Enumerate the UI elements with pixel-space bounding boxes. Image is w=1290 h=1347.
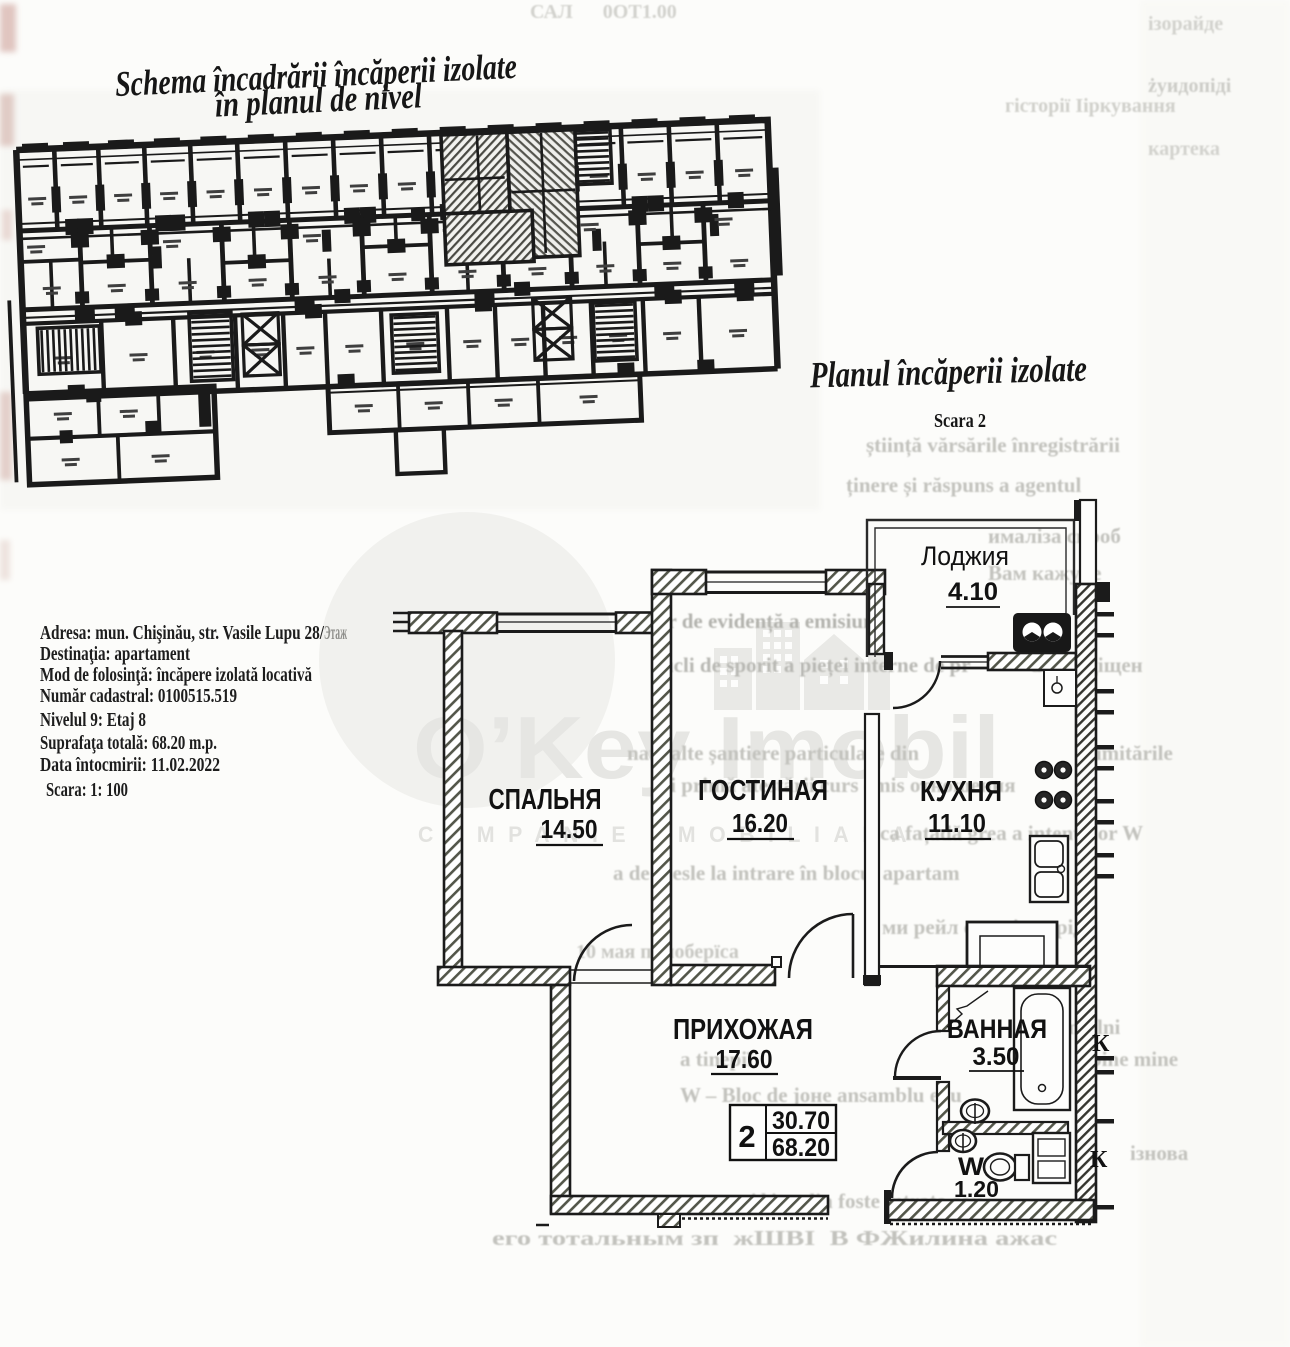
svg-text:11.10: 11.10 bbox=[928, 808, 986, 838]
svg-text:știință vărsările înregistrări: știință vărsările înregistrării bbox=[866, 433, 1120, 458]
svg-text:Data întocmirii: 11.02.2022: Data întocmirii: 11.02.2022 bbox=[40, 755, 220, 776]
svg-text:Adresa: mun. Chişinău, str. Va: Adresa: mun. Chişinău, str. Vasile Lupu … bbox=[40, 623, 324, 644]
svg-text:К: К bbox=[1092, 1031, 1110, 1057]
svg-text:ізорайде: ізорайде bbox=[1148, 13, 1223, 35]
svg-text:14.50: 14.50 bbox=[541, 814, 598, 844]
svg-text:ПРИХОЖАЯ: ПРИХОЖАЯ bbox=[673, 1014, 813, 1046]
svg-text:СПАЛЬНЯ: СПАЛЬНЯ bbox=[489, 784, 602, 816]
svg-text:limitările: limitările bbox=[1090, 741, 1173, 765]
svg-text:Destinaţia: apartament: Destinaţia: apartament bbox=[40, 644, 190, 665]
svg-text:его тотальным зп жШВІ В ФЖил: его тотальным зп жШВІ В ФЖилина ажас bbox=[492, 1226, 1057, 1250]
svg-text:Лоджия: Лоджия bbox=[921, 541, 1009, 571]
svg-text:or de evidență a emisiun: or de evidență a emisiun bbox=[657, 609, 875, 634]
svg-text:2: 2 bbox=[738, 1119, 755, 1154]
svg-text:Număr cadastral: 0100515.519: Număr cadastral: 0100515.519 bbox=[40, 686, 237, 707]
svg-text:4.10: 4.10 bbox=[948, 578, 998, 606]
svg-text:Nivelul 9: Etaj 8: Nivelul 9: Etaj 8 bbox=[40, 710, 146, 731]
svg-text:ізнова: ізнова bbox=[1130, 1141, 1189, 1165]
svg-text:гісторії Ііркування: гісторії Ііркування bbox=[1005, 95, 1176, 117]
svg-text:ucli de sporit a pieței intern: ucli de sporit a pieței interne de pr bbox=[662, 653, 971, 678]
svg-text:ținere și răspuns a agentul: ținere și răspuns a agentul bbox=[846, 473, 1081, 498]
svg-text:САЛ 0ОТ1.00: САЛ 0ОТ1.00 bbox=[530, 1, 677, 23]
svg-text:1.20: 1.20 bbox=[954, 1176, 999, 1202]
svg-text:ГОСТИНАЯ: ГОСТИНАЯ bbox=[698, 775, 828, 807]
svg-text:Planul încăperii izolate: Planul încăperii izolate bbox=[809, 349, 1088, 397]
svg-text:30.70: 30.70 bbox=[772, 1107, 830, 1135]
svg-text:17.60: 17.60 bbox=[716, 1044, 773, 1074]
svg-text:16.20: 16.20 bbox=[732, 808, 788, 838]
svg-text:W – Bloc de jоне ansamblu e lu: W – Bloc de jоне ansamblu e lu bbox=[680, 1083, 962, 1107]
svg-text:żуидопіді: żуидопіді bbox=[1148, 75, 1232, 97]
svg-text:68.20: 68.20 bbox=[772, 1134, 830, 1162]
svg-text:картека: картека bbox=[1148, 138, 1220, 160]
svg-text:3.50: 3.50 bbox=[973, 1043, 1020, 1071]
svg-text:КУХНЯ: КУХНЯ bbox=[920, 776, 1002, 808]
svg-text:Scara: 1: 100: Scara: 1: 100 bbox=[46, 780, 128, 801]
svg-text:Этаж: Этаж bbox=[324, 623, 347, 644]
svg-text:Scara 2: Scara 2 bbox=[934, 410, 986, 432]
svg-text:Suprafaţa totală: 68.20 m.p.: Suprafaţa totală: 68.20 m.p. bbox=[40, 733, 217, 754]
svg-text:Mod de folosinţă: încăpere izo: Mod de folosinţă: încăpere izolată locat… bbox=[40, 665, 312, 686]
svg-text:ВАННАЯ: ВАННАЯ bbox=[947, 1014, 1047, 1044]
svg-text:ca fațadă grea a intențiilor W: ca fațadă grea a intențiilor W bbox=[880, 821, 1143, 846]
svg-text:К: К bbox=[1090, 1147, 1108, 1173]
